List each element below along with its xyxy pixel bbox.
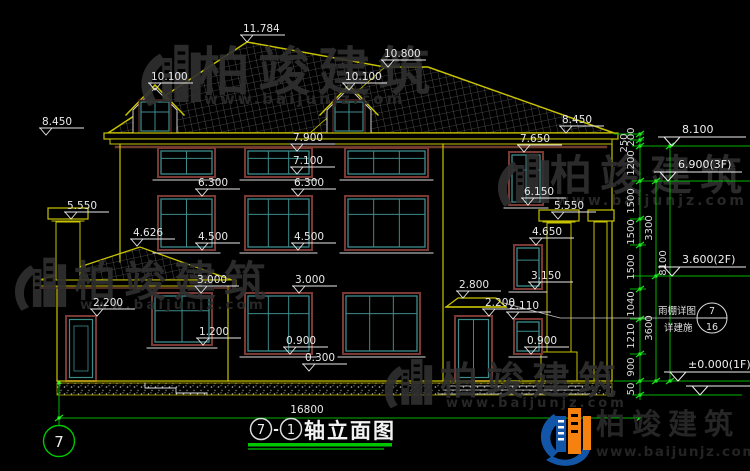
- watermark-logo: [385, 359, 432, 408]
- elevation-mark: 3.000: [292, 274, 337, 293]
- chain-dim-value: 3600: [644, 315, 655, 340]
- brand-name: 柏竣建筑: [596, 407, 740, 441]
- green-dot: [58, 382, 61, 385]
- elevation-mark-value: 1.200: [199, 326, 229, 338]
- elevation-mark-value: 7.900: [293, 132, 323, 144]
- level-marker: 8.100: [658, 123, 746, 146]
- watermark-logo: [15, 258, 66, 311]
- green-dot: [58, 417, 61, 420]
- watermark-url: www.baijunjz.com: [204, 90, 405, 108]
- window: [509, 245, 547, 292]
- elevation-mark-triangle: [293, 286, 305, 293]
- elevation-mark-value: 2.110: [509, 300, 539, 312]
- elevation-mark-value: 7.100: [293, 155, 323, 167]
- elevation-mark-value: 0.300: [305, 352, 335, 364]
- elevation-mark: 6.300: [195, 177, 240, 196]
- window: [340, 196, 433, 253]
- overall-dimension-label: 16800: [290, 404, 323, 416]
- elevation-mark-value: 10.100: [151, 71, 188, 83]
- chain-dim-value: 1200: [626, 150, 637, 175]
- elevation-mark-value: 2.800: [459, 279, 489, 291]
- title-axis-b: 1: [287, 423, 295, 438]
- chain-dim-value: 900: [626, 357, 637, 376]
- elevation-mark-value: 7.650: [520, 133, 550, 145]
- window: [240, 196, 317, 253]
- elevation-mark-value: 5.550: [554, 200, 584, 212]
- window-frame: [345, 196, 428, 250]
- elevation-mark-triangle: [483, 309, 495, 316]
- grid-bubble-label: 7: [54, 433, 64, 451]
- level-marker: [686, 386, 750, 395]
- chain-dim-value: 1500: [626, 219, 637, 244]
- elevation-mark-value: 3.000: [197, 274, 227, 286]
- elevation-mark-value: 4.500: [294, 231, 324, 243]
- elevation-mark-value: 10.800: [384, 48, 421, 60]
- callout-ref: 详建施: [664, 322, 693, 334]
- elevation-mark: 6.300: [291, 177, 336, 196]
- elevation-mark-value: 11.784: [243, 23, 280, 35]
- elevation-mark-triangle: [241, 35, 253, 42]
- watermark-url: www.baijunjz.com: [556, 193, 747, 209]
- elevation-mark-triangle: [507, 312, 519, 319]
- elevation-mark-triangle: [40, 128, 52, 135]
- elevation-mark-triangle: [292, 189, 304, 196]
- level-marker: 3.600(2F): [658, 253, 746, 276]
- chain-dim-value: 1040: [626, 291, 637, 316]
- level-marker-value: 3.600(2F): [682, 253, 735, 266]
- brand-url: www.baijunjz.com: [596, 444, 750, 460]
- chain-dim-value: 3300: [644, 215, 655, 240]
- elevation-mark-value: 4.650: [532, 226, 562, 238]
- elevation-mark-triangle: [530, 238, 542, 245]
- elevation-mark-value: 10.100: [345, 71, 382, 83]
- window: [340, 148, 433, 180]
- callout-detail-number: 7: [709, 306, 715, 317]
- chain-dim-value: 1500: [626, 254, 637, 279]
- elevation-mark-value: 5.550: [67, 200, 97, 212]
- window-frame: [343, 293, 420, 354]
- elevation-mark-value: 2.200: [93, 297, 123, 309]
- title-axis-a: 7: [257, 423, 265, 438]
- level-marker-value: ±0.000(1F): [688, 358, 750, 371]
- elevation-mark-value: 3.150: [531, 270, 561, 282]
- elevation-mark-triangle: [457, 291, 469, 298]
- elevation-mark-value: 0.900: [286, 335, 316, 347]
- cad-elevation-canvas: 柏竣建筑www.baijunjz.com柏竣建筑www.baijunjz.com…: [0, 0, 750, 471]
- window: [153, 196, 220, 253]
- brand-logo-icon: [541, 408, 591, 466]
- elevation-mark-triangle: [196, 189, 208, 196]
- elevation-mark-triangle: [131, 239, 143, 246]
- elevation-mark-value: 0.900: [527, 335, 557, 347]
- brand-logo: 柏竣建筑 www.baijunjz.com: [541, 407, 750, 466]
- elevation-mark-value: 8.450: [562, 114, 592, 126]
- elevation-mark-value: 6.150: [524, 186, 554, 198]
- title-dash: -: [273, 422, 279, 438]
- window: [338, 293, 425, 357]
- chain-dim-value: 50: [626, 383, 637, 396]
- elevation-mark-value: 4.626: [133, 227, 163, 239]
- elevation-mark-value: 8.450: [42, 116, 72, 128]
- callout-name: 雨棚详图: [658, 305, 696, 317]
- elevation-mark-value: 4.500: [198, 231, 228, 243]
- chain-dim-value: 1500: [626, 188, 637, 213]
- chain-dim-value: 1210: [626, 323, 637, 348]
- chain-dim-value: 250: [619, 133, 630, 152]
- elevation-mark-value: 6.300: [198, 177, 228, 189]
- elevation-mark: 11.784: [240, 23, 285, 42]
- chain-dim-value: 8100: [658, 250, 669, 275]
- elevation-mark: 2.800: [456, 279, 501, 298]
- elevation-mark: 0.300: [302, 352, 347, 371]
- level-marker-value: 8.100: [682, 123, 714, 136]
- drawing-title: 轴立面图: [304, 419, 396, 443]
- level-marker-value: 6.900(3F): [678, 158, 731, 171]
- window: [153, 148, 220, 180]
- cad-elevation-screenshot: 柏竣建筑www.baijunjz.com柏竣建筑www.baijunjz.com…: [0, 0, 750, 471]
- elevation-mark-value: 6.300: [294, 177, 324, 189]
- window-frame: [345, 148, 428, 177]
- elevation-mark-triangle: [303, 364, 315, 371]
- door: [66, 316, 96, 381]
- level-marker: ±0.000(1F): [664, 358, 750, 381]
- right-pilaster: [588, 210, 614, 381]
- grid-bubble: 7: [44, 426, 75, 457]
- level-marker-triangle: [692, 386, 708, 395]
- title-block: 7 - 1 轴立面图: [248, 419, 396, 450]
- elevation-mark-value: 3.000: [295, 274, 325, 286]
- elevation-mark: 8.450: [39, 116, 84, 135]
- callout-sheet-number: 16: [706, 322, 718, 333]
